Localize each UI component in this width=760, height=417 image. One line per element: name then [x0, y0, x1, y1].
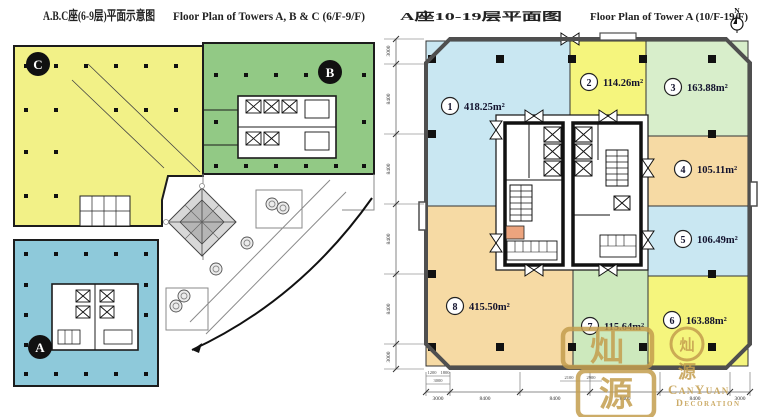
emblem-char-top: 灿: [679, 336, 694, 354]
zone-3-area: 163.88m²: [687, 83, 728, 94]
emblem-char-bottom: 源: [678, 361, 696, 382]
zone-1-number: 1: [448, 102, 453, 113]
wall-bump-left: [419, 202, 426, 230]
zone-5-area: 106.49m²: [697, 235, 738, 246]
zone-6-number: 6: [670, 316, 675, 327]
dim-bottom-0: 3000: [433, 396, 444, 402]
north-arrow-icon: N: [731, 6, 743, 33]
zone-5-number: 5: [681, 235, 686, 246]
core-block-left: [505, 123, 563, 265]
right-plan-title-cn: A座10-19层平面图: [400, 9, 562, 23]
dim-sub-3: 2100: [565, 375, 575, 380]
zone-1-area: 418.25m²: [464, 102, 505, 113]
elevator-icons: [544, 127, 561, 176]
floor-plan-sheet: A.B.C座(6-9层)平面示意图 Floor Plan of Towers A…: [0, 0, 760, 417]
dim-sub-2: 3000: [434, 378, 444, 383]
wall-bump-right: [750, 182, 757, 206]
zone-6-area: 163.88m²: [686, 316, 727, 327]
dim-sub-1: 1800: [441, 370, 451, 375]
logo-name: CanYuan: [668, 382, 730, 397]
tower-c-label: C: [33, 57, 42, 72]
pantry-room: [506, 226, 524, 239]
dim-left-1: 8400: [386, 93, 392, 104]
zone-4-area: 105.11m²: [697, 165, 737, 176]
dim-left-2: 8400: [386, 163, 392, 174]
seal-char-bottom: 源: [599, 376, 633, 414]
dim-left-0: 3000: [386, 45, 392, 56]
zone-2-area: 114.26m²: [603, 78, 643, 89]
seal-char-top: 灿: [590, 330, 624, 368]
dim-bottom-1: 8400: [480, 396, 491, 402]
atrium-plaza: [164, 174, 375, 353]
tower-c-badge: C: [26, 52, 50, 76]
dim-sub-0: 1200: [428, 370, 438, 375]
skylight-icon: [164, 184, 237, 257]
zone-3-number: 3: [671, 83, 676, 94]
zone-8-number: 8: [453, 302, 458, 313]
right-plan-title-en: Floor Plan of Tower A (10/F-19/F): [590, 12, 748, 23]
left-plan-title-en: Floor Plan of Towers A, B & C (6/F-9/F): [173, 11, 365, 23]
tower-b-badge: B: [318, 60, 342, 84]
tower-c-core: [80, 196, 130, 226]
logo-subtitle: Decoration: [676, 399, 741, 409]
right-floor-plan: 1 418.25m² 2 114.26m² 3 163.88m² 4 105.1…: [384, 33, 757, 402]
left-plan-title-cn: A.B.C座(6-9层)平面示意图: [43, 8, 155, 23]
dim-left-5: 3000: [386, 351, 392, 362]
zone-8-area: 415.50m²: [469, 302, 510, 313]
tower-b-label: B: [326, 65, 335, 80]
zone-4-number: 4: [681, 165, 686, 176]
dim-bottom-2: 8400: [550, 396, 561, 402]
tower-a-core: [52, 284, 138, 350]
floor-plan-canvas: A.B.C座(6-9层)平面示意图 Floor Plan of Towers A…: [0, 0, 760, 417]
north-label: N: [734, 6, 740, 15]
dim-left-3: 8400: [386, 233, 392, 244]
tower-a-badge: A: [28, 335, 52, 359]
dim-sub-4: 2900: [587, 375, 597, 380]
tower-a-label: A: [35, 340, 45, 355]
core-block-right: [573, 123, 641, 265]
dimension-left: 3000 8400 8400 8400 8400 3000: [384, 36, 424, 372]
left-floor-plan: C B A: [14, 43, 374, 386]
dim-left-4: 8400: [386, 303, 392, 314]
entry-notch-top: [600, 33, 636, 40]
zone-2-number: 2: [587, 78, 592, 89]
